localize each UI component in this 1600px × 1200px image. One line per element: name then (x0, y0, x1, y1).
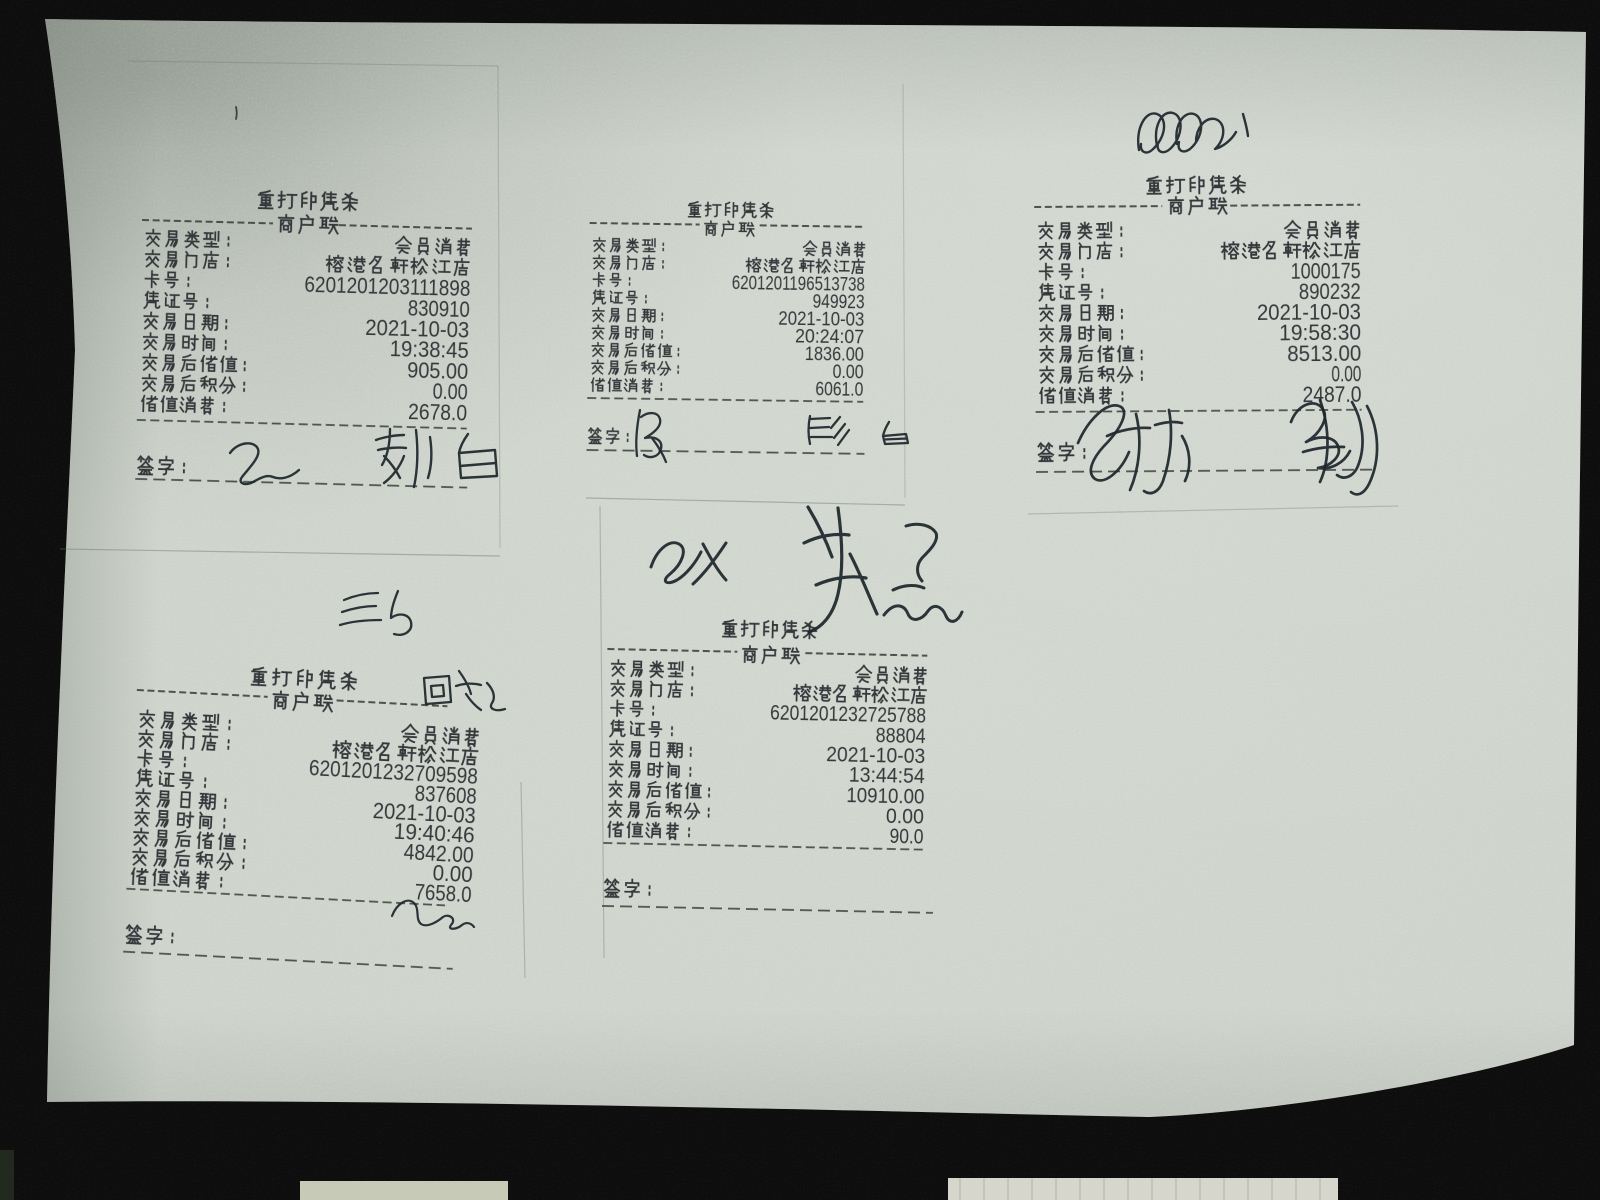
svg-text:90.0: 90.0 (889, 825, 923, 849)
svg-text:7658.0: 7658.0 (414, 879, 472, 907)
svg-text:2678.0: 2678.0 (408, 399, 468, 426)
svg-text:6061.0: 6061.0 (815, 379, 863, 401)
